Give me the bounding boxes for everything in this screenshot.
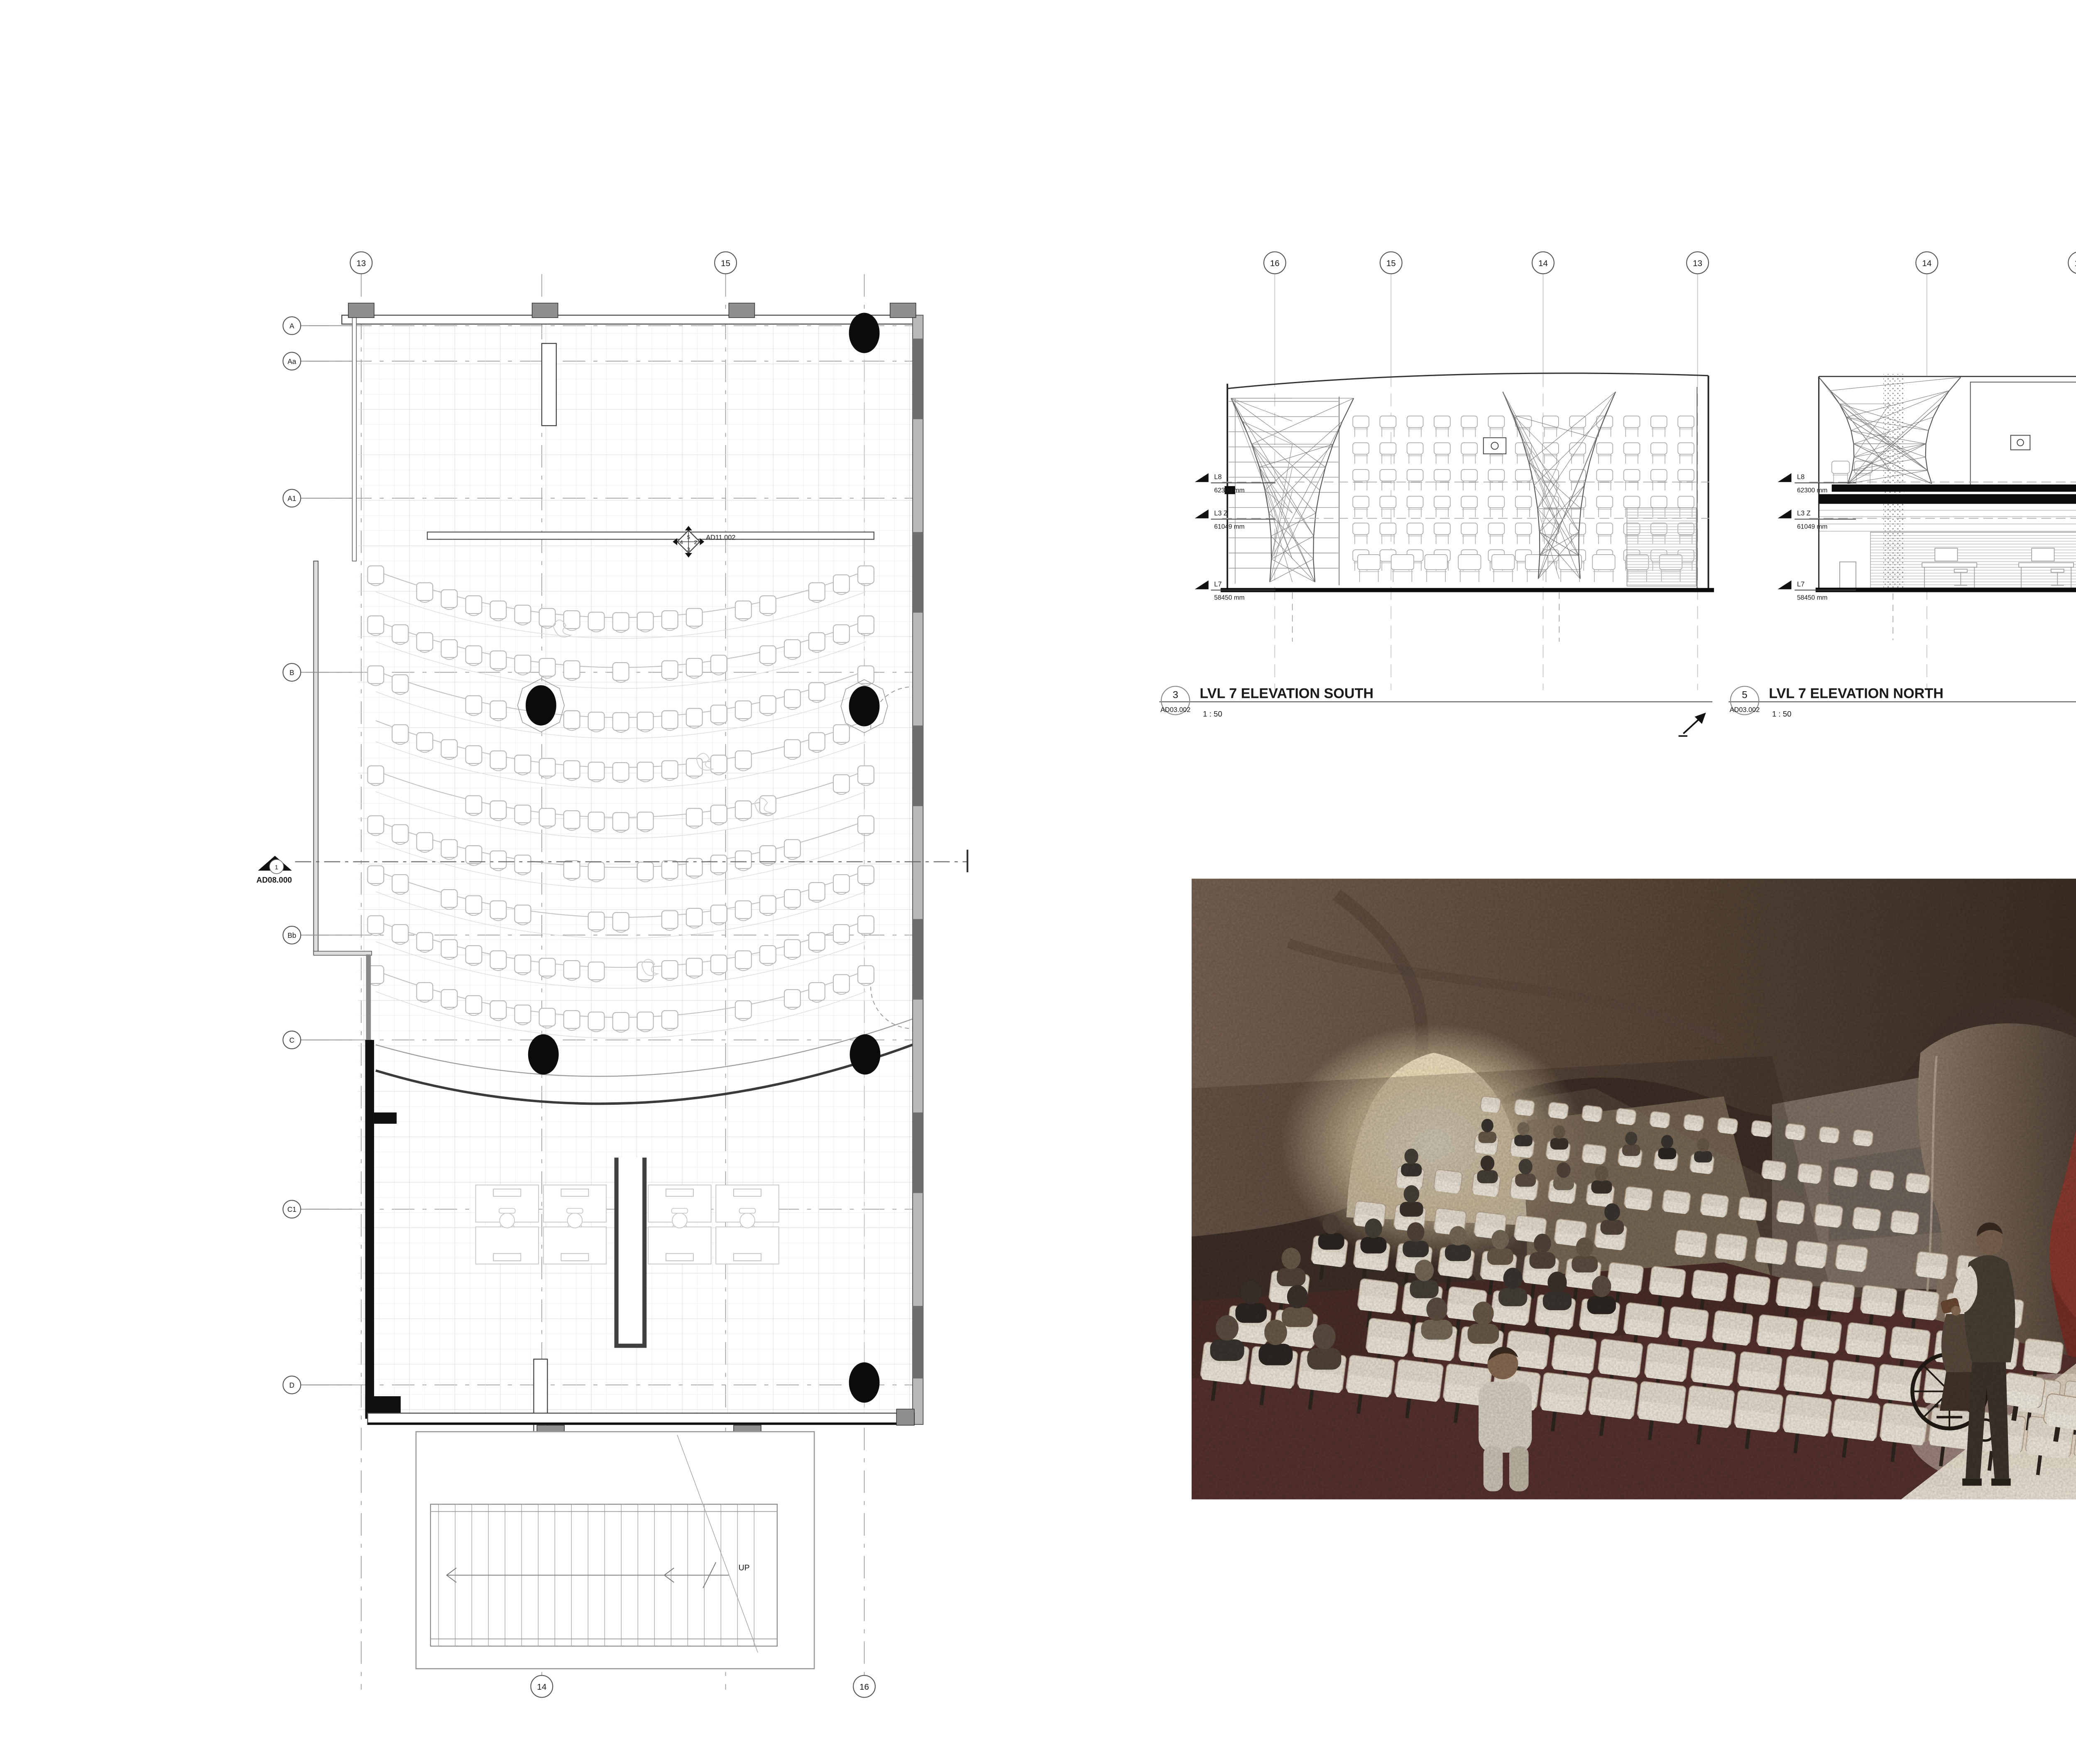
grid-bubble: 14 — [537, 1682, 546, 1692]
plan-seat — [784, 690, 801, 710]
plan-stair: UP — [416, 1432, 814, 1669]
plan-seat — [588, 612, 605, 632]
plan-seat — [367, 866, 384, 886]
callout-bottom: 3 — [687, 546, 690, 553]
level-name: L3 Z — [1214, 510, 1228, 517]
grid-bubble: 14 — [1922, 259, 1932, 268]
grid-bubble: B — [289, 669, 294, 677]
plan-seat — [637, 712, 654, 732]
grid-bubble: 13 — [356, 259, 366, 268]
view-scale: 1 : 50 — [1203, 710, 1222, 718]
level-name: L3 Z — [1797, 510, 1811, 517]
plan-seat — [367, 766, 384, 786]
view-title: LVL 7 ELEVATION NORTH — [1769, 686, 1944, 702]
plan-seat — [833, 875, 849, 895]
plan-seat — [588, 812, 605, 832]
plan-seat — [490, 901, 507, 921]
stair-up-label: UP — [739, 1563, 750, 1573]
plan-seat — [662, 711, 678, 730]
plan-seat — [809, 932, 825, 952]
elev-south-hatch-wall — [1627, 508, 1696, 586]
level-elevation: 61049 mm — [1214, 523, 1244, 530]
plan-seat — [416, 932, 433, 952]
detail-sheet: AD03.002 — [1160, 706, 1191, 714]
grid-bubble: Aa — [287, 358, 296, 366]
plan-seat — [588, 912, 605, 932]
plan-seat — [539, 758, 556, 778]
plan-seat — [760, 646, 776, 666]
level-elevation: 62300 mm — [1797, 487, 1827, 494]
plan-seat — [588, 762, 605, 782]
grid-bubble: C1 — [287, 1206, 296, 1214]
plan-seat — [490, 701, 507, 721]
plan-seat — [416, 633, 433, 652]
plan-lectern-shaft — [617, 1157, 645, 1346]
plan-seat — [833, 975, 849, 995]
level-elevation: 58450 mm — [1797, 594, 1827, 601]
plan-seat — [588, 1012, 605, 1032]
grid-bubble: 15 — [2074, 259, 2076, 268]
elev-north-slab-band-1 — [1832, 484, 2076, 492]
plan-seat — [490, 801, 507, 821]
view-title-south: 3 AD03.002 LVL 7 ELEVATION SOUTH 1 : 50 — [1159, 686, 1712, 719]
plan-seat — [686, 908, 703, 928]
plan-seat — [564, 811, 580, 830]
plan-seat — [735, 1001, 752, 1021]
plan-seat — [809, 633, 825, 652]
plan-seat — [809, 983, 825, 1002]
plan-seat — [760, 696, 776, 716]
plan-seat — [367, 666, 384, 686]
plan-seat — [466, 846, 482, 866]
elev-north-grid-bubbles: 14 15 16 — [1916, 252, 2076, 274]
plan-seat — [588, 712, 605, 732]
plan-seat — [490, 951, 507, 971]
plan-seat — [637, 962, 654, 982]
plan-seat — [564, 761, 580, 780]
plan-seat — [588, 962, 605, 982]
plan-seat — [858, 666, 874, 686]
plan-seat — [858, 616, 874, 636]
plan-seat — [637, 812, 654, 832]
grid-bubble: 13 — [1693, 259, 1702, 268]
plan-seat — [441, 890, 458, 910]
plan-seat — [784, 890, 801, 910]
plan-seat — [784, 740, 801, 760]
plan-seat — [441, 590, 458, 610]
detail-number: 3 — [1173, 690, 1178, 701]
grid-bubble: Bb — [287, 932, 296, 939]
cursor-arrow-icon — [1679, 713, 1706, 736]
plan-seat — [711, 805, 727, 825]
elev-north-concrete-column — [1883, 374, 1904, 589]
callout-right: 2 — [694, 539, 697, 545]
plan-seat — [564, 1010, 580, 1030]
detail-number: 5 — [1742, 690, 1747, 701]
plan-seat — [490, 1001, 507, 1021]
plan-seat — [564, 711, 580, 730]
elev-south-floor-slab — [1221, 588, 1714, 592]
plan-seat — [466, 596, 482, 616]
plan-seat — [760, 896, 776, 916]
plan-seat — [760, 596, 776, 616]
level-name: L8 — [1214, 473, 1222, 481]
plan-seat — [662, 611, 678, 630]
plan-seat — [613, 613, 629, 633]
plan-seat — [515, 855, 531, 875]
plan-seat — [686, 708, 703, 728]
plan-seat — [809, 883, 825, 902]
plan-seat — [735, 951, 752, 971]
grid-bubble: C — [289, 1036, 294, 1044]
grid-bubble: 14 — [1538, 259, 1548, 268]
plan-seat — [662, 1010, 678, 1030]
view-title: LVL 7 ELEVATION SOUTH — [1200, 686, 1373, 702]
plan-seat — [637, 612, 654, 632]
plan-seat — [833, 925, 849, 944]
interior-render — [1192, 879, 2076, 1500]
callout-top: 5 — [687, 534, 690, 541]
grid-bubble: A1 — [287, 495, 296, 503]
plan-seat — [392, 625, 408, 645]
elev-north-projector — [2011, 435, 2030, 450]
plan-seat — [613, 812, 629, 832]
plan-seat — [613, 663, 629, 683]
plan-seat — [833, 625, 849, 645]
view-scale: 1 : 50 — [1772, 710, 1792, 718]
plan-seat — [367, 816, 384, 836]
floor-plan: UP 1 AD08.000 5 2 3 4 AD11.002 A Aa A1 B… — [256, 252, 967, 1698]
plan-seat — [735, 851, 752, 871]
grid-bubble: 16 — [1270, 259, 1280, 268]
plan-seat — [637, 862, 654, 882]
section-number: 1 — [275, 864, 278, 871]
plan-seat — [662, 861, 678, 880]
plan-seat — [711, 855, 727, 875]
level-name: L7 — [1214, 580, 1222, 588]
plan-seat — [515, 805, 531, 825]
plan-seat — [637, 1012, 654, 1032]
plan-seat — [515, 605, 531, 625]
plan-seat — [711, 905, 727, 925]
level-name: L7 — [1797, 580, 1804, 588]
plan-seat — [784, 990, 801, 1010]
plan-seat — [416, 583, 433, 602]
plan-seat — [564, 611, 580, 630]
plan-seat — [539, 1008, 556, 1028]
elev-south-roofline — [1227, 373, 1708, 389]
plan-seat — [392, 875, 408, 895]
plan-seat — [662, 761, 678, 780]
plan-seat — [662, 961, 678, 980]
plan-seat — [564, 861, 580, 880]
plan-seat — [416, 833, 433, 852]
elev-south-grid-bubbles: 16 15 14 13 — [1264, 252, 1709, 274]
section-sheet: AD08.000 — [256, 876, 292, 885]
elevation-south: L8 62300 mm L3 Z 61049 mm L7 58450 mm 16… — [1195, 252, 1714, 690]
plan-seat — [515, 1005, 531, 1025]
plan-seat — [490, 851, 507, 871]
elev-south-steps — [1229, 401, 1338, 568]
plan-seat — [466, 696, 482, 716]
plan-seat — [613, 763, 629, 783]
plan-seat — [466, 996, 482, 1015]
plan-seat — [760, 846, 776, 866]
plan-seat — [784, 839, 801, 859]
plan-seat — [784, 939, 801, 959]
plan-seat — [539, 808, 556, 828]
plan-seat — [858, 566, 874, 586]
level-elevation: 62300 mm — [1214, 487, 1244, 494]
plan-seat — [686, 958, 703, 978]
plan-seat — [858, 966, 874, 986]
plan-seat — [466, 896, 482, 916]
plan-seat — [515, 655, 531, 675]
plan-seat — [760, 946, 776, 966]
plan-seat — [637, 762, 654, 782]
plan-seat — [735, 701, 752, 721]
plan-seat — [833, 725, 849, 745]
plan-seat — [784, 640, 801, 660]
plan-seat — [490, 751, 507, 771]
plan-seat — [441, 740, 458, 760]
elev-north-middle-bay — [1971, 382, 2076, 485]
plan-seat — [490, 651, 507, 671]
plan-projection-screen — [427, 532, 874, 539]
plan-seat — [392, 725, 408, 745]
plan-seat — [662, 661, 678, 680]
plan-seat — [760, 796, 776, 816]
plan-seat — [711, 655, 727, 675]
grid-bubble: 15 — [721, 259, 730, 268]
level-elevation: 58450 mm — [1214, 594, 1244, 601]
elev-south-projector — [1484, 438, 1506, 454]
plan-seat — [367, 916, 384, 936]
plan-seat — [416, 983, 433, 1002]
view-title-north: 5 AD03.002 LVL 7 ELEVATION NORTH 1 : 50 — [1728, 686, 2076, 719]
plan-seat — [809, 683, 825, 702]
level-name: L8 — [1797, 473, 1804, 481]
plan-seat — [858, 766, 874, 786]
plan-seat — [588, 862, 605, 882]
plan-seat — [711, 755, 727, 775]
grid-bubble: 15 — [1386, 259, 1396, 268]
plan-seat — [539, 658, 556, 678]
plan-seat — [441, 839, 458, 859]
sheet-canvas: UP 1 AD08.000 5 2 3 4 AD11.002 A Aa A1 B… — [0, 0, 2076, 1756]
plan-seat — [662, 911, 678, 930]
plan-seat — [490, 601, 507, 621]
plan-seat — [441, 939, 458, 959]
plan-seat — [613, 713, 629, 733]
callout-left: 4 — [680, 539, 683, 545]
plan-seat — [367, 616, 384, 636]
plan-seat — [735, 801, 752, 821]
level-elevation: 61049 mm — [1797, 523, 1827, 530]
plan-seat — [441, 990, 458, 1010]
plan-seat — [564, 661, 580, 680]
plan-seat — [539, 958, 556, 978]
drawing-sheet: UP 1 AD08.000 5 2 3 4 AD11.002 A Aa A1 B… — [0, 0, 2076, 1756]
plan-door-top — [542, 343, 556, 426]
plan-seat — [466, 646, 482, 666]
plan-seat — [367, 566, 384, 586]
plan-seat — [711, 955, 727, 975]
plan-seat — [858, 916, 874, 936]
plan-seat — [392, 925, 408, 944]
plan-seat — [686, 609, 703, 629]
plan-seat — [441, 640, 458, 660]
plan-seat — [515, 955, 531, 975]
plan-seat — [416, 733, 433, 752]
plan-seat — [392, 825, 408, 844]
plan-seat — [735, 601, 752, 621]
plan-seat — [735, 901, 752, 921]
render-film-grain — [1192, 879, 2076, 1500]
plan-seat — [809, 733, 825, 752]
plan-seat — [686, 658, 703, 678]
plan-seat — [711, 705, 727, 725]
plan-seat — [833, 775, 849, 795]
detail-sheet: AD03.002 — [1730, 706, 1760, 714]
plan-seat — [466, 946, 482, 966]
plan-seat — [858, 866, 874, 886]
plan-seat — [613, 913, 629, 932]
plan-seat — [564, 961, 580, 980]
plan-seat — [515, 905, 531, 925]
grid-bubble: A — [289, 322, 294, 330]
plan-seat — [392, 675, 408, 695]
callout-sheet: AD11.002 — [706, 534, 735, 541]
plan-seat — [686, 808, 703, 828]
grid-bubble: 16 — [859, 1682, 869, 1692]
plan-seat — [613, 1013, 629, 1032]
plan-seat — [466, 796, 482, 816]
plan-seat — [735, 751, 752, 771]
elevation-north: L8 62300 mm L3 Z 61049 mm L7 58450 mm 14… — [1778, 252, 2076, 690]
plan-seat — [833, 575, 849, 595]
grid-bubble: D — [289, 1382, 294, 1390]
elev-north-slab-band-2 — [1819, 494, 2076, 504]
plan-seat — [858, 816, 874, 836]
plan-seat — [515, 755, 531, 775]
plan-seat — [686, 758, 703, 778]
plan-seat — [466, 746, 482, 766]
plan-seat — [809, 583, 825, 602]
